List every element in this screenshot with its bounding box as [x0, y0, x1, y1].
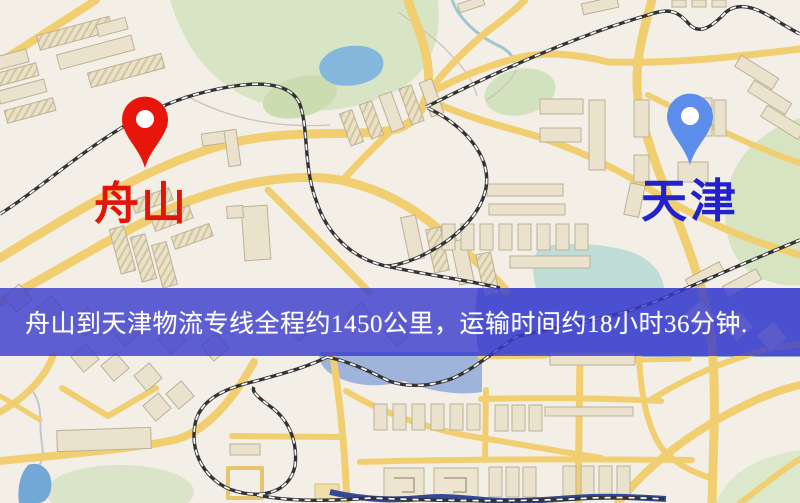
destination-pin-hole	[681, 107, 699, 125]
origin-pin-icon	[118, 93, 172, 169]
destination-pin-icon	[663, 90, 717, 166]
destination-pin-shape	[667, 94, 713, 165]
map-canvas[interactable]	[0, 0, 800, 503]
origin-label: 舟山	[94, 182, 188, 227]
route-info-banner: 舟山到天津物流专线全程约1450公里，运输时间约18小时36分钟.	[0, 288, 800, 356]
destination-label: 天津	[641, 179, 739, 225]
route-info-text: 舟山到天津物流专线全程约1450公里，运输时间约18小时36分钟.	[25, 304, 748, 340]
origin-pin[interactable]	[118, 93, 172, 169]
map-screenshot: 舟山 天津 舟山到天津物流专线全程约1450公里，运输时间约18小时36分钟.	[0, 0, 800, 503]
origin-pin-shape	[122, 97, 168, 168]
origin-pin-hole	[136, 110, 154, 128]
destination-pin[interactable]	[663, 90, 717, 166]
